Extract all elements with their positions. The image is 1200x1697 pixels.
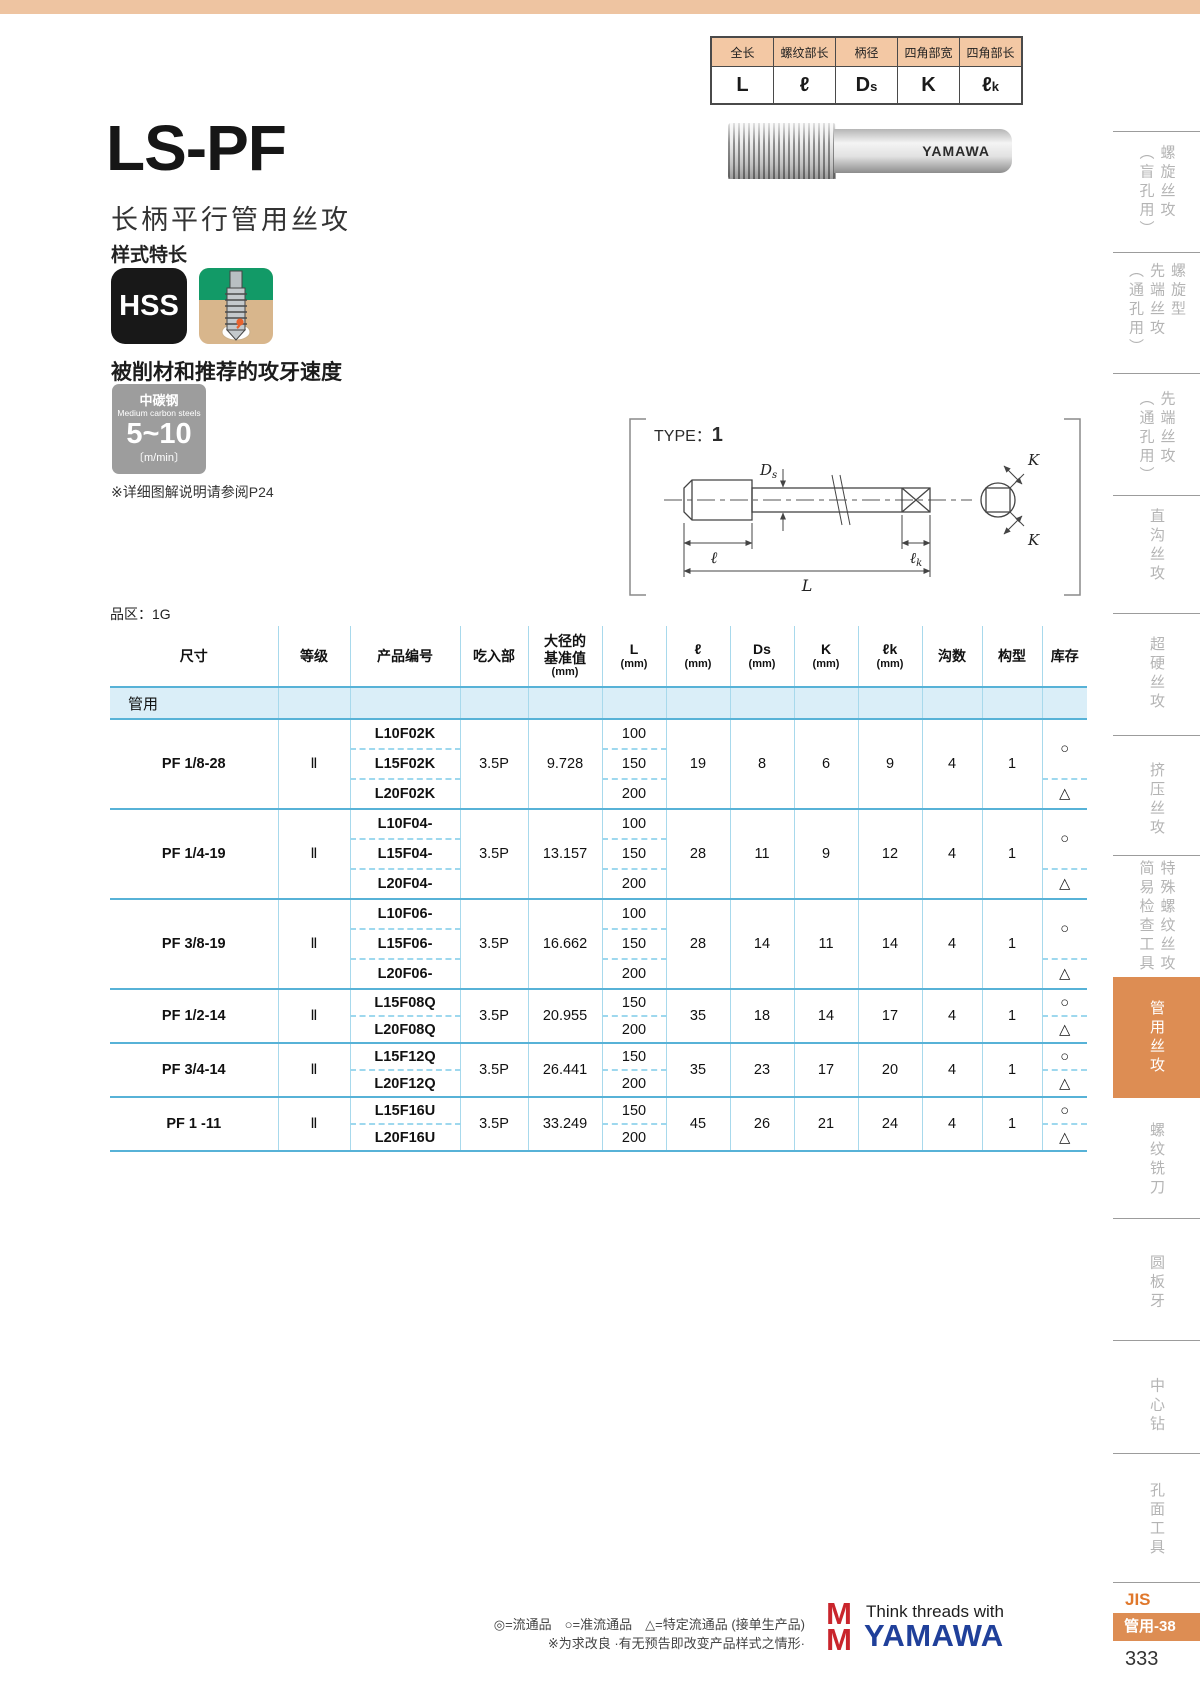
sidebar-separator xyxy=(1113,1340,1200,1341)
page-number: 333 xyxy=(1125,1648,1158,1671)
sidebar-separator xyxy=(1113,252,1200,253)
flutes-cell: 4 xyxy=(922,1097,982,1151)
section-empty-cell xyxy=(982,687,1042,719)
size-cell: PF 1/8-28 xyxy=(110,719,278,809)
sidebar-tab-4[interactable]: 超硬丝攻 xyxy=(1113,636,1200,712)
square-end-view xyxy=(981,483,1015,517)
left-bracket xyxy=(630,419,646,595)
stock-symbol-legend-line: ◎=流通品 ○=准流通品 △=特定流通品 (接单生产品) xyxy=(430,1616,805,1635)
stock-cell: △ xyxy=(1042,1016,1087,1043)
section-empty-cell xyxy=(730,687,794,719)
sidebar-tab-label: 挤压丝攻 xyxy=(1146,762,1167,838)
overall-length-cell: 200 xyxy=(602,1070,666,1097)
sidebar-tab-8[interactable]: 螺纹铣刀 xyxy=(1113,1122,1200,1198)
spec-data-row: PF 3/4-14ⅡL15F12Q3.5P26.4411503523172041… xyxy=(110,1043,1087,1070)
material-name-en: Medium carbon steels xyxy=(117,409,200,418)
sidebar-tab-label: 直沟丝攻 xyxy=(1146,508,1167,584)
major-dia-cell: 16.662 xyxy=(528,899,602,989)
square-width-cell: 14 xyxy=(794,989,858,1043)
major-dia-cell: 13.157 xyxy=(528,809,602,899)
section-empty-cell xyxy=(922,687,982,719)
legend-value-cell: L xyxy=(711,67,774,105)
sidebar-tab-label: 中心钻 xyxy=(1146,1378,1167,1435)
shank-dia-cell: 14 xyxy=(730,899,794,989)
shank-dia-cell: 8 xyxy=(730,719,794,809)
size-cell: PF 1/2-14 xyxy=(110,989,278,1043)
spec-table: 尺寸等级产品编号吃入部大径的基准值(mm)L(mm)ℓ(mm)Ds(mm)K(m… xyxy=(110,626,1087,1152)
flutes-cell: 4 xyxy=(922,719,982,809)
overall-length-cell: 200 xyxy=(602,1016,666,1043)
yamawa-logo-mark-icon: M M xyxy=(816,1598,862,1656)
size-cell: PF 3/8-19 xyxy=(110,899,278,989)
overall-length-cell: 200 xyxy=(602,1124,666,1151)
tap-shank-section: YAMAWA xyxy=(834,129,1012,173)
stock-cell: △ xyxy=(1042,1070,1087,1097)
section-label-cell: 管用 xyxy=(110,687,278,719)
brand-wordmark: YAMAWA xyxy=(864,1618,1004,1654)
legend-header-cell: 四角部宽 xyxy=(898,37,960,67)
sidebar-separator xyxy=(1113,1453,1200,1454)
type-cell: 1 xyxy=(982,899,1042,989)
through-hole-tap-icon xyxy=(199,268,273,344)
product-code-cell: L20F06- xyxy=(350,959,460,989)
thread-length-cell: 28 xyxy=(666,809,730,899)
sidebar-tab-label: 螺旋型先端丝攻（通孔用） xyxy=(1125,263,1188,358)
section-empty-cell xyxy=(528,687,602,719)
photo-brand-marking: YAMAWA xyxy=(922,143,990,159)
product-code-cell: L20F02K xyxy=(350,779,460,809)
square-length-cell: 24 xyxy=(858,1097,922,1151)
section-empty-cell xyxy=(278,687,350,719)
product-code-cell: L20F04- xyxy=(350,869,460,899)
square-length-cell: 12 xyxy=(858,809,922,899)
square-width-cell: 21 xyxy=(794,1097,858,1151)
size-cell: PF 1/4-19 xyxy=(110,809,278,899)
L-dimension xyxy=(684,515,930,577)
type-cell: 1 xyxy=(982,809,1042,899)
sidebar-tab-11[interactable]: 孔面工具 xyxy=(1113,1482,1200,1558)
sidebar-tab-1[interactable]: 螺旋型先端丝攻（通孔用） xyxy=(1113,263,1200,358)
product-code-cell: L15F12Q xyxy=(350,1043,460,1070)
sidebar-tab-0[interactable]: 螺旋丝攻（盲孔用） xyxy=(1113,145,1200,240)
spec-data-row: PF 1/2-14ⅡL15F08Q3.5P20.9551503518141741… xyxy=(110,989,1087,1016)
lk-dimension xyxy=(902,515,930,549)
size-cell: PF 1 -11 xyxy=(110,1097,278,1151)
disclaimer-note: ※为求改良 ·有无预告即改变产品样式之情形· xyxy=(430,1635,805,1654)
overall-length-cell: 100 xyxy=(602,899,666,929)
type-cell: 1 xyxy=(982,989,1042,1043)
sidebar-separator xyxy=(1113,735,1200,736)
overall-length-cell: 100 xyxy=(602,719,666,749)
grade-cell: Ⅱ xyxy=(278,719,350,809)
sidebar-tab-5[interactable]: 挤压丝攻 xyxy=(1113,762,1200,838)
spec-column-header: 吃入部 xyxy=(460,626,528,687)
K-label-bottom: K xyxy=(1027,531,1040,549)
thread-length-cell: 35 xyxy=(666,1043,730,1097)
reference-note: ※详细图解说明请参阅P24 xyxy=(111,482,274,502)
spec-data-row: PF 1/8-28ⅡL10F02K3.5P9.7281001986941○ xyxy=(110,719,1087,749)
square-width-cell: 6 xyxy=(794,719,858,809)
square-width-cell: 17 xyxy=(794,1043,858,1097)
chamfer-cell: 3.5P xyxy=(460,809,528,899)
stock-cell: ○ xyxy=(1042,719,1087,779)
section-empty-cell xyxy=(666,687,730,719)
square-length-cell: 14 xyxy=(858,899,922,989)
grade-cell: Ⅱ xyxy=(278,989,350,1043)
section-empty-cell xyxy=(602,687,666,719)
sidebar-tab-label: 先端丝攻（通孔用） xyxy=(1136,391,1178,486)
legend-value-cell: ℓk xyxy=(960,67,1023,105)
spec-column-header: 大径的基准值(mm) xyxy=(528,626,602,687)
product-photo: YAMAWA xyxy=(722,116,1012,186)
product-code-cell: L15F08Q xyxy=(350,989,460,1016)
hss-label: HSS xyxy=(119,290,179,323)
lk-label: ℓk xyxy=(910,549,922,569)
overall-length-cell: 200 xyxy=(602,959,666,989)
size-cell: PF 3/4-14 xyxy=(110,1043,278,1097)
spec-column-header: 构型 xyxy=(982,626,1042,687)
thread-length-cell: 35 xyxy=(666,989,730,1043)
stock-cell: ○ xyxy=(1042,989,1087,1016)
section-subheader-row: 管用 xyxy=(110,687,1087,719)
ell-label: ℓ xyxy=(711,548,718,567)
stock-cell: ○ xyxy=(1042,1097,1087,1124)
grade-cell: Ⅱ xyxy=(278,1097,350,1151)
spec-table-header-row: 尺寸等级产品编号吃入部大径的基准值(mm)L(mm)ℓ(mm)Ds(mm)K(m… xyxy=(110,626,1087,687)
spec-column-header: ℓ(mm) xyxy=(666,626,730,687)
overall-length-cell: 100 xyxy=(602,809,666,839)
spec-column-header: 库存 xyxy=(1042,626,1087,687)
legend-header-row: 全长螺纹部长柄径四角部宽四角部长 xyxy=(711,37,1022,67)
stock-cell: ○ xyxy=(1042,899,1087,959)
square-length-cell: 17 xyxy=(858,989,922,1043)
product-code-cell: L20F08Q xyxy=(350,1016,460,1043)
type-1-dimension-diagram: TYPE：1 Ds ℓ L xyxy=(620,405,1090,605)
product-code-cell: L10F04- xyxy=(350,809,460,839)
shank-dia-cell: 23 xyxy=(730,1043,794,1097)
hss-badge: HSS xyxy=(111,268,187,344)
product-zone-label: 品区：1G xyxy=(110,604,171,624)
sidebar-separator xyxy=(1113,613,1200,614)
stock-cell: △ xyxy=(1042,1124,1087,1151)
overall-length-cell: 150 xyxy=(602,929,666,959)
chamfer-cell: 3.5P xyxy=(460,989,528,1043)
product-name-cn: 长柄平行管用丝攻 xyxy=(111,198,351,237)
style-note: 样式特长 xyxy=(111,240,187,267)
legend-value-row: LℓDsKℓk xyxy=(711,67,1022,105)
catalog-page: 全长螺纹部长柄径四角部宽四角部长 LℓDsKℓk YAMAWA LS-PF 长柄… xyxy=(0,0,1200,1697)
jis-section-tab: 管用-38 xyxy=(1113,1613,1200,1641)
sidebar-separator xyxy=(1113,855,1200,856)
sidebar-tab-label: 螺纹铣刀 xyxy=(1146,1122,1167,1198)
legend-value-cell: ℓ xyxy=(774,67,836,105)
spec-column-header: Ds(mm) xyxy=(730,626,794,687)
product-code-cell: L20F12Q xyxy=(350,1070,460,1097)
legend-value-cell: Ds xyxy=(836,67,898,105)
spec-column-header: ℓk(mm) xyxy=(858,626,922,687)
section-empty-cell xyxy=(858,687,922,719)
type-label: TYPE：1 xyxy=(654,424,723,446)
square-length-cell: 9 xyxy=(858,719,922,809)
legend-header-cell: 四角部长 xyxy=(960,37,1023,67)
product-code-cell: L10F02K xyxy=(350,719,460,749)
thread-length-cell: 45 xyxy=(666,1097,730,1151)
ell-dimension xyxy=(684,523,752,549)
sidebar-separator xyxy=(1113,131,1200,132)
sidebar-tab-label: 螺旋丝攻（盲孔用） xyxy=(1136,145,1178,240)
sidebar-separator xyxy=(1113,373,1200,374)
product-model-title: LS-PF xyxy=(106,116,286,180)
sidebar-tab-10[interactable]: 中心钻 xyxy=(1113,1378,1200,1435)
dimension-legend-table: 全长螺纹部长柄径四角部宽四角部长 LℓDsKℓk xyxy=(710,36,1023,105)
sidebar-separator xyxy=(1113,1582,1200,1583)
product-code-cell: L15F16U xyxy=(350,1097,460,1124)
sidebar-tab-3[interactable]: 直沟丝攻 xyxy=(1113,508,1200,584)
chamfer-cell: 3.5P xyxy=(460,1043,528,1097)
stock-symbol-legend: ◎=流通品 ○=准流通品 △=特定流通品 (接单生产品) ※为求改良 ·有无预告… xyxy=(430,1616,805,1654)
product-code-cell: L10F06- xyxy=(350,899,460,929)
thread-length-cell: 28 xyxy=(666,899,730,989)
square-width-cell: 9 xyxy=(794,809,858,899)
grade-cell: Ⅱ xyxy=(278,899,350,989)
section-empty-cell xyxy=(350,687,460,719)
K-dimensions xyxy=(1004,466,1024,534)
overall-length-cell: 150 xyxy=(602,839,666,869)
section-empty-cell xyxy=(1042,687,1087,719)
major-dia-cell: 20.955 xyxy=(528,989,602,1043)
stock-cell: △ xyxy=(1042,869,1087,899)
legend-header-cell: 螺纹部长 xyxy=(774,37,836,67)
ds-label: Ds xyxy=(759,461,777,481)
thread-length-cell: 19 xyxy=(666,719,730,809)
stock-cell: ○ xyxy=(1042,809,1087,869)
legend-value-cell: K xyxy=(898,67,960,105)
chamfer-cell: 3.5P xyxy=(460,719,528,809)
type-cell: 1 xyxy=(982,719,1042,809)
spec-data-row: PF 3/8-19ⅡL10F06-3.5P16.6621002814111441… xyxy=(110,899,1087,929)
right-bracket xyxy=(1064,419,1080,595)
sidebar-tab-label: 超硬丝攻 xyxy=(1146,636,1167,712)
type-cell: 1 xyxy=(982,1097,1042,1151)
flutes-cell: 4 xyxy=(922,989,982,1043)
spec-column-header: L(mm) xyxy=(602,626,666,687)
major-dia-cell: 26.441 xyxy=(528,1043,602,1097)
product-code-cell: L15F06- xyxy=(350,929,460,959)
product-code-cell: L15F04- xyxy=(350,839,460,869)
stock-cell: △ xyxy=(1042,959,1087,989)
sidebar-tab-9[interactable]: 圆板牙 xyxy=(1113,1255,1200,1312)
spec-column-header: 尺寸 xyxy=(110,626,278,687)
chamfer-cell: 3.5P xyxy=(460,899,528,989)
sidebar-tab-label: 特殊螺纹丝攻简易检查工具 xyxy=(1136,860,1178,974)
speed-value: 5~10 xyxy=(126,419,191,451)
sidebar-separator xyxy=(1113,495,1200,496)
square-width-cell: 11 xyxy=(794,899,858,989)
speed-section-heading: 被削材和推荐的攻牙速度 xyxy=(111,356,342,386)
overall-length-cell: 150 xyxy=(602,749,666,779)
stock-cell: ○ xyxy=(1042,1043,1087,1070)
grade-cell: Ⅱ xyxy=(278,1043,350,1097)
sidebar-tab-label: 管用丝攻 xyxy=(1146,1000,1167,1076)
spec-data-row: PF 1/4-19ⅡL10F04-3.5P13.157100281191241○ xyxy=(110,809,1087,839)
major-dia-cell: 33.249 xyxy=(528,1097,602,1151)
sidebar-tab-2[interactable]: 先端丝攻（通孔用） xyxy=(1113,391,1200,486)
overall-length-cell: 200 xyxy=(602,779,666,809)
type-cell: 1 xyxy=(982,1043,1042,1097)
overall-length-cell: 150 xyxy=(602,1097,666,1124)
sidebar-tab-label: 圆板牙 xyxy=(1146,1255,1167,1312)
spec-column-header: 等级 xyxy=(278,626,350,687)
chamfer-cell: 3.5P xyxy=(460,1097,528,1151)
stock-cell: △ xyxy=(1042,779,1087,809)
shank-dia-cell: 11 xyxy=(730,809,794,899)
sidebar-separator xyxy=(1113,1218,1200,1219)
major-dia-cell: 9.728 xyxy=(528,719,602,809)
speed-unit: 〔m/min〕 xyxy=(133,452,185,464)
grade-cell: Ⅱ xyxy=(278,809,350,899)
shank-dia-cell: 18 xyxy=(730,989,794,1043)
svg-text:M: M xyxy=(826,1622,852,1656)
product-code-cell: L20F16U xyxy=(350,1124,460,1151)
shank-dia-cell: 26 xyxy=(730,1097,794,1151)
legend-header-cell: 全长 xyxy=(711,37,774,67)
overall-length-cell: 150 xyxy=(602,989,666,1016)
material-name-cn: 中碳钢 xyxy=(139,394,178,408)
speed-box: 中碳钢 Medium carbon steels 5~10 〔m/min〕 xyxy=(112,384,206,474)
overall-length-cell: 150 xyxy=(602,1043,666,1070)
jis-label: JIS xyxy=(1125,1590,1151,1610)
L-label: L xyxy=(801,576,813,595)
spec-data-row: PF 1 -11ⅡL15F16U3.5P33.2491504526212441○ xyxy=(110,1097,1087,1124)
legend-header-cell: 柄径 xyxy=(836,37,898,67)
sidebar-tab-label: 孔面工具 xyxy=(1146,1482,1167,1558)
sidebar-tab-7[interactable]: 管用丝攻 xyxy=(1113,977,1200,1098)
spec-column-header: 沟数 xyxy=(922,626,982,687)
section-empty-cell xyxy=(460,687,528,719)
top-accent-bar xyxy=(0,0,1200,14)
section-empty-cell xyxy=(794,687,858,719)
flutes-cell: 4 xyxy=(922,1043,982,1097)
flutes-cell: 4 xyxy=(922,899,982,989)
spec-column-header: 产品编号 xyxy=(350,626,460,687)
spec-column-header: K(mm) xyxy=(794,626,858,687)
product-code-cell: L15F02K xyxy=(350,749,460,779)
tap-thread-section xyxy=(728,123,836,179)
overall-length-cell: 200 xyxy=(602,869,666,899)
K-label-top: K xyxy=(1027,451,1040,469)
sidebar-tab-6[interactable]: 特殊螺纹丝攻简易检查工具 xyxy=(1113,860,1200,974)
square-length-cell: 20 xyxy=(858,1043,922,1097)
flutes-cell: 4 xyxy=(922,809,982,899)
